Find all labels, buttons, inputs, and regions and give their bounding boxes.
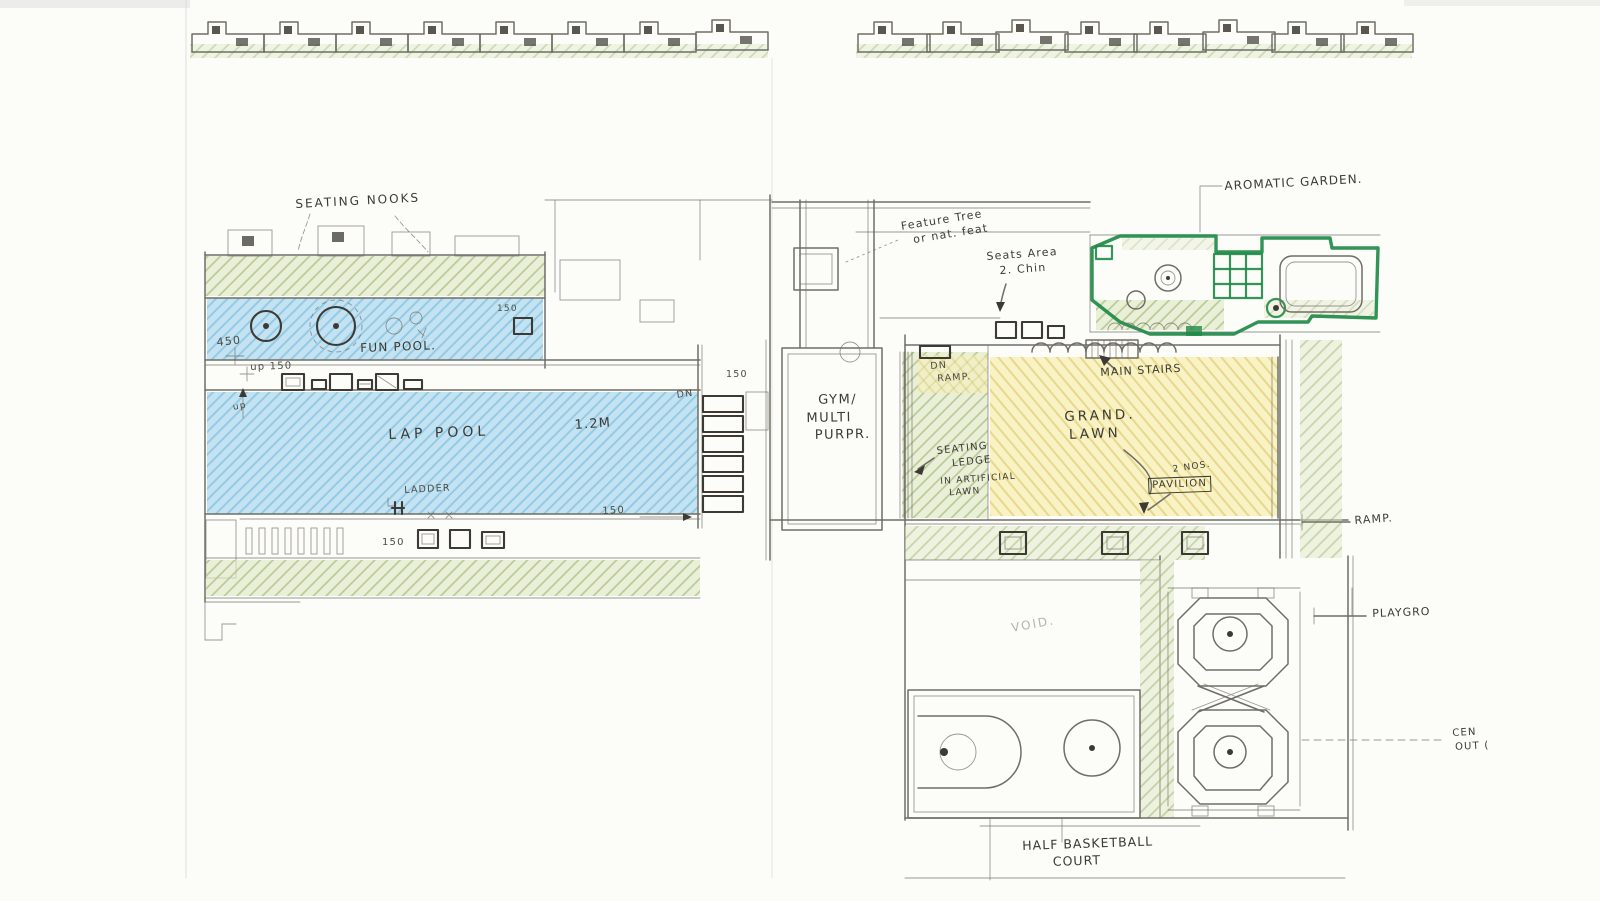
dim-dn-left: DN: [676, 388, 694, 403]
label-dn-ramp: DN RAMP.: [930, 358, 972, 386]
label-pavilion: PAVILION: [1148, 476, 1211, 494]
plan-drawing: [0, 0, 1600, 901]
label-gym-line1: GYM/: [818, 391, 870, 409]
right-wall-ramp: [1280, 335, 1350, 558]
label-gym-line3: PURPR.: [815, 426, 871, 445]
label-grand-lawn-line1: GRAND.: [1064, 406, 1136, 427]
label-dn-ramp-line2: RAMP.: [937, 371, 972, 386]
aromatic-garden: [1090, 186, 1380, 336]
playground-shape: [1168, 556, 1353, 830]
note-seats: Seats Area 2. Chin: [986, 245, 1059, 280]
top-buildings-row-right: [856, 20, 1413, 58]
label-ramp: RAMP.: [1354, 511, 1394, 529]
basketball-court-shape: [908, 690, 1140, 818]
label-gym: GYM/ MULTI PURPR.: [806, 391, 871, 445]
dim-150-funpool: 150: [497, 303, 518, 315]
label-half-court-line2: COURT: [1053, 850, 1154, 870]
dim-150-bench: 150: [382, 536, 405, 550]
dim-150-poolend: 150: [602, 504, 625, 519]
label-seating-ledge: SEATING LEDGE: [936, 439, 992, 471]
label-grand-lawn-line2: LAWN: [1069, 424, 1137, 445]
pool-south-benches: [205, 520, 700, 640]
void-court-block: [905, 556, 1348, 880]
label-playground: PLAYGRO: [1372, 605, 1431, 622]
label-pavilion-box: PAVILION: [1148, 476, 1211, 494]
stairs-block: [703, 392, 768, 512]
top-buildings-row-left: [190, 20, 768, 58]
label-gym-line2: MULTI: [806, 408, 870, 427]
label-pool-depth: 1.2M: [574, 414, 612, 434]
label-central-outdoor-line2: OUT (: [1455, 739, 1490, 754]
label-fun-pool: FUN POOL.: [360, 337, 436, 356]
dim-450: 450: [216, 333, 242, 350]
label-half-court: HALF BASKETBALL COURT: [1022, 833, 1154, 871]
label-central-outdoor: CEN OUT (: [1452, 725, 1490, 754]
fun-pool-shape: [205, 298, 700, 365]
dim-up-150: up 150: [250, 360, 293, 375]
dim-up: up: [232, 400, 248, 414]
label-grand-lawn: GRAND. LAWN: [1064, 406, 1137, 445]
label-ladder: LADDER: [404, 483, 451, 498]
site-plan-sketch: SEATING NOOKS 450 FUN POOL. 150 up 150 u…: [0, 0, 1600, 901]
label-lap-pool: LAP POOL: [388, 422, 489, 444]
dim-150-stair: 150: [726, 369, 748, 382]
